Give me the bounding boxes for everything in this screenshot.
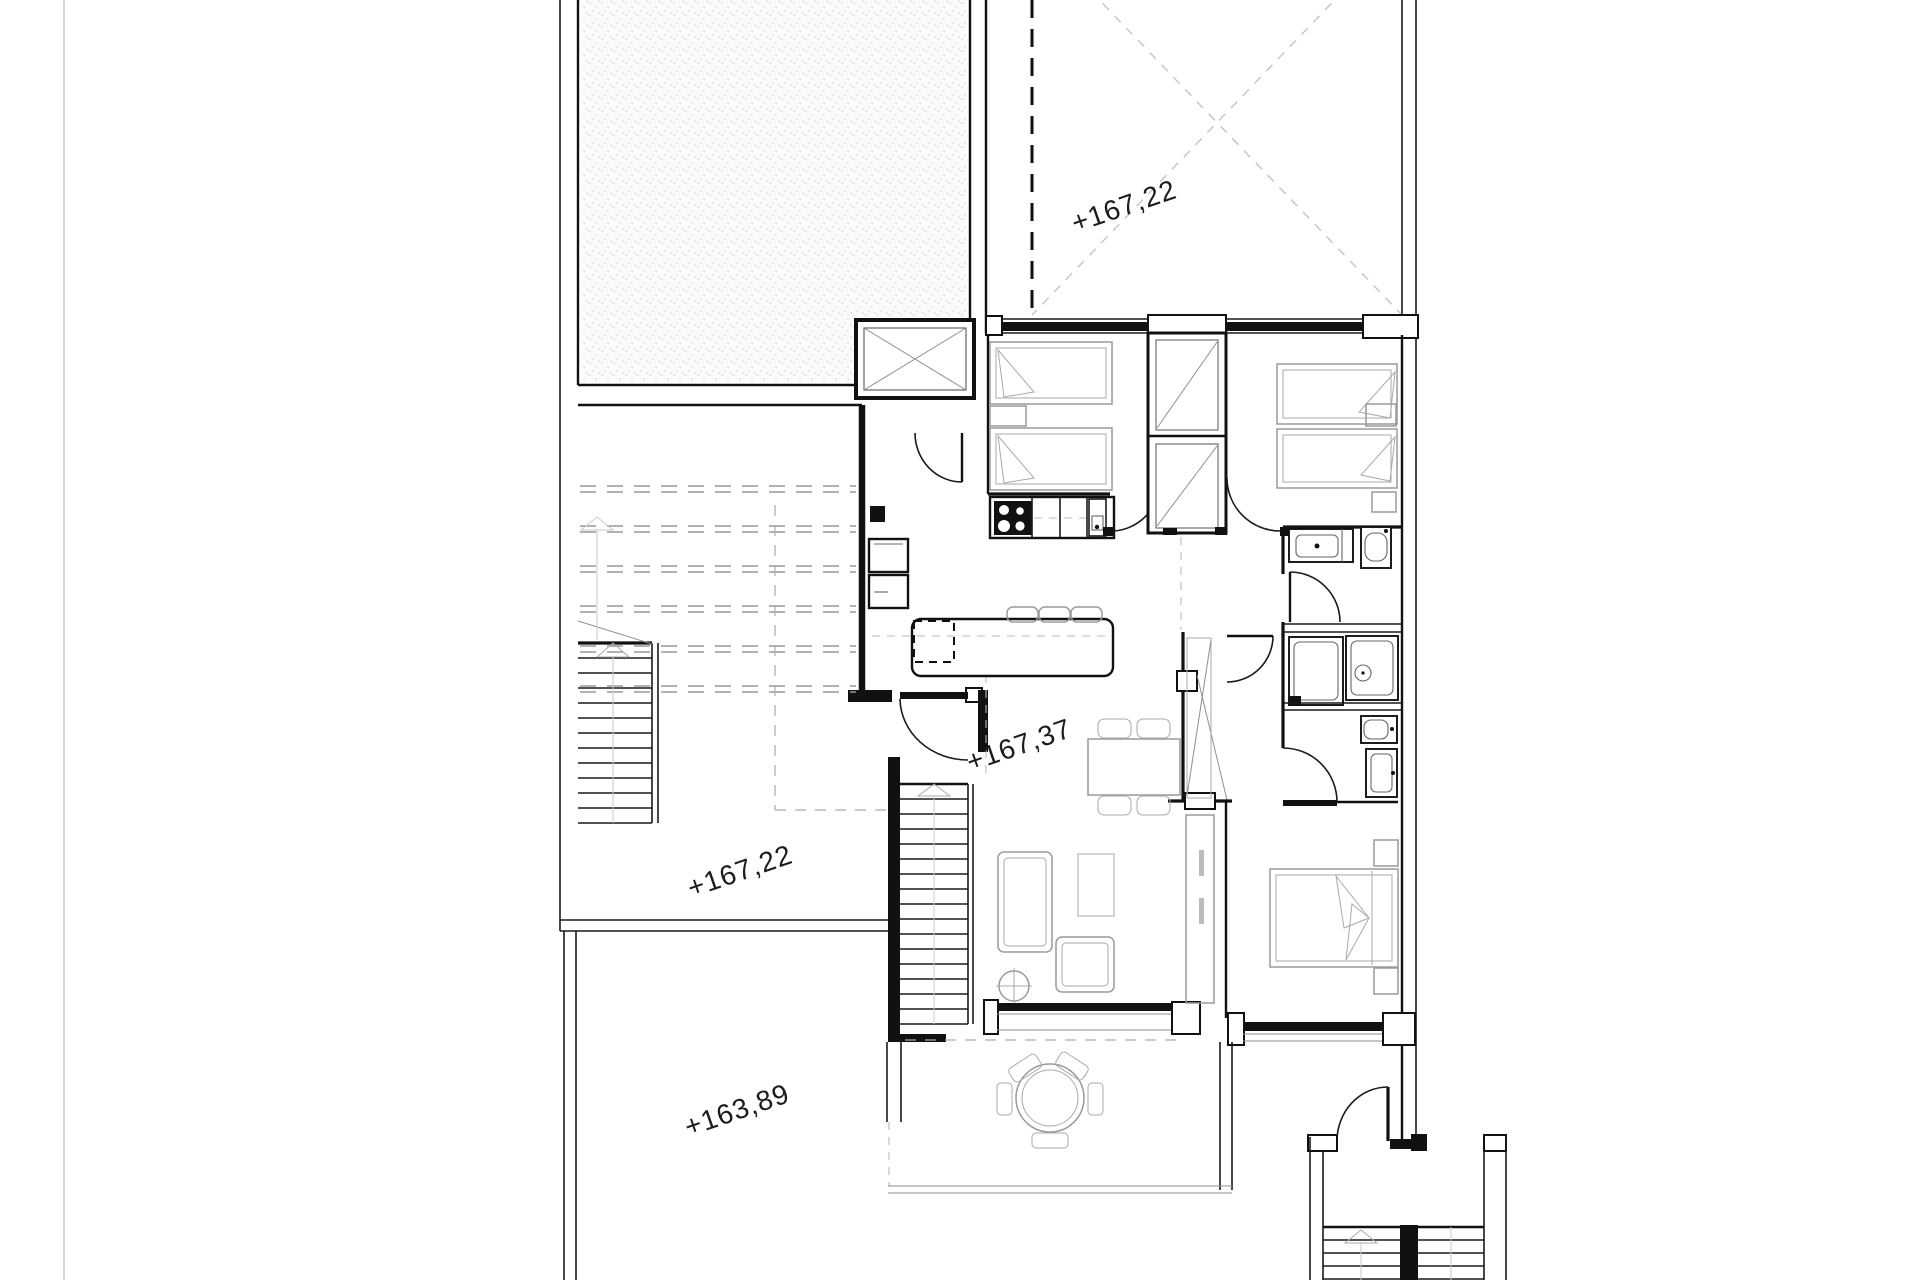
bathroom-1-door-swing	[1290, 572, 1340, 622]
sink-vanity-icon	[1289, 529, 1353, 562]
shower-tray-icon	[1289, 637, 1343, 706]
sink-vanity-icon	[1366, 749, 1397, 797]
living-room-window	[984, 1000, 1200, 1034]
shower-room	[1227, 636, 1402, 710]
overhead-dashed-rows	[580, 486, 856, 692]
nightstand-icon	[1374, 840, 1398, 866]
nightstand-icon	[990, 406, 1026, 426]
shower-icon	[1346, 636, 1398, 700]
shaft	[856, 320, 974, 398]
kitchen-island	[872, 607, 1113, 676]
floor-lamp-icon	[996, 968, 1032, 1004]
stair-direction-arrow-icon	[918, 784, 950, 796]
toilet-icon	[1361, 716, 1397, 743]
roof-terrace: +167,22	[1032, 0, 1416, 1140]
stair-direction-arrow-icon	[597, 643, 629, 657]
floor-plan-drawing: +167,22	[0, 0, 1920, 1280]
twin-bed-icon	[1277, 364, 1397, 424]
wardrobe-closet	[1148, 333, 1227, 535]
round-table-icon	[997, 1051, 1103, 1148]
twin-bed-icon	[990, 428, 1112, 490]
hallway	[1168, 537, 1232, 809]
shower-room-door-swing	[1227, 636, 1273, 682]
double-bed-icon	[1270, 869, 1398, 967]
living-dining-room: +167,37	[962, 713, 1200, 1034]
pantry-door	[915, 433, 962, 482]
rear-terrace	[887, 1040, 1232, 1193]
dining-table-icon	[1088, 719, 1180, 815]
stair-direction-arrow-icon	[1345, 1230, 1377, 1243]
dishwasher-icon	[914, 621, 954, 662]
nightstand-icon	[1372, 492, 1396, 512]
lower-terrace: +163,89	[680, 1078, 793, 1143]
kitchen-wall-cabinets	[869, 506, 908, 608]
elevation-label-roof-terrace: +167,22	[1067, 174, 1180, 239]
toilet-icon	[1361, 527, 1391, 568]
elevation-label-courtyard: +167,22	[683, 839, 796, 904]
bathroom-1	[1283, 527, 1402, 636]
entry-door-leaf	[900, 692, 968, 699]
kitchen	[869, 433, 1114, 676]
courtyard-staircase	[578, 517, 658, 823]
elevation-label-lower-terrace: +163,89	[680, 1078, 793, 1143]
entry-door-swing	[900, 699, 968, 760]
floor-plan-page: +167,22	[0, 0, 1920, 1280]
twin-bed-icon	[990, 342, 1112, 404]
upper-flight-arrow-icon	[581, 517, 613, 530]
entrance-stairs	[1308, 1087, 1506, 1280]
twin-bed-icon	[1277, 429, 1397, 488]
hob-icon	[994, 501, 1032, 535]
stair-flight-right	[1418, 1227, 1484, 1280]
bathroom-2-door-swing	[1283, 748, 1337, 802]
courtyard-terrace: +167,22	[578, 405, 892, 903]
interior-staircase	[888, 757, 973, 1042]
master-bedroom-window	[1228, 1013, 1427, 1151]
bedroom-twin-right	[1227, 364, 1397, 536]
nightstand-icon	[1374, 968, 1398, 994]
entry-and-internal-stair	[888, 675, 988, 1042]
wardrobe-icon	[1186, 815, 1214, 1003]
stair-flight-left	[1323, 1227, 1400, 1280]
